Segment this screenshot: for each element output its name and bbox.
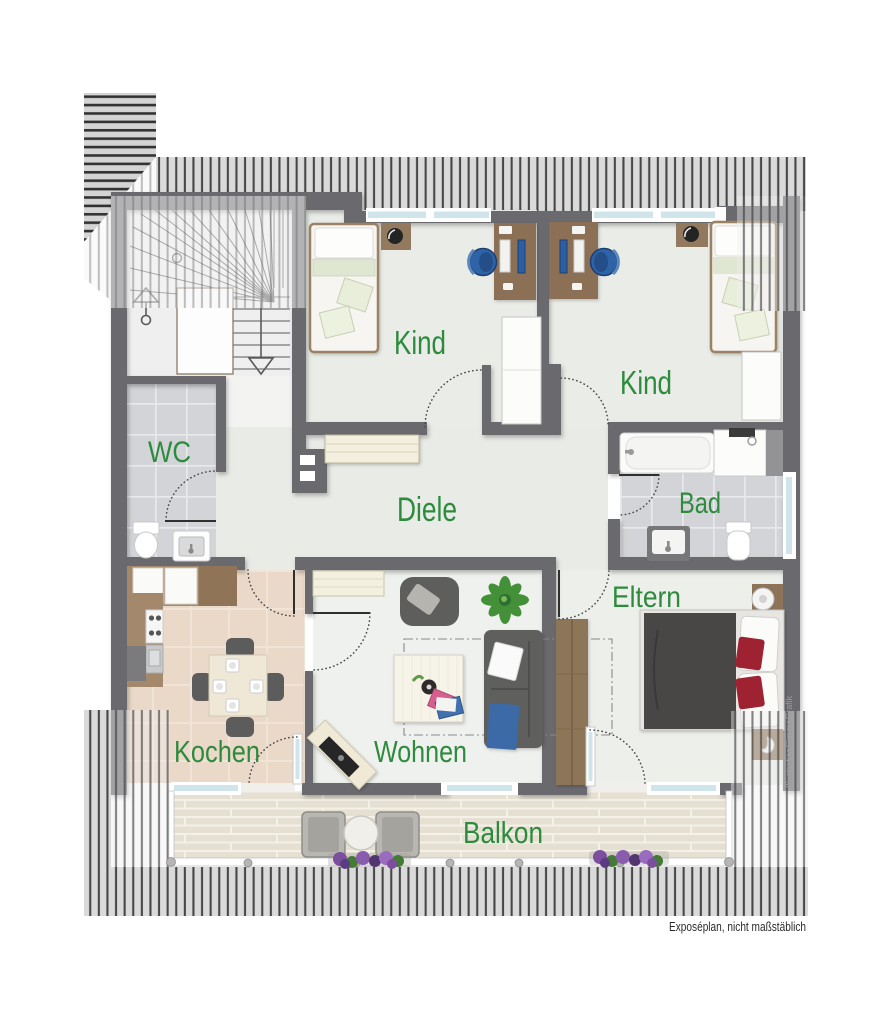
svg-text:Wohnen: Wohnen	[374, 734, 467, 769]
svg-text:Balkon: Balkon	[463, 815, 543, 850]
svg-text:Kind: Kind	[620, 364, 672, 401]
svg-text:WC: WC	[148, 436, 191, 469]
svg-text:Eltern: Eltern	[612, 581, 681, 614]
svg-text:Diele: Diele	[397, 491, 457, 529]
svg-text:IllustrationCimmoGrafik: IllustrationCimmoGrafik	[784, 696, 794, 788]
svg-text:Kochen: Kochen	[174, 734, 260, 769]
svg-text:Bad: Bad	[679, 487, 721, 520]
svg-text:Kind: Kind	[394, 324, 446, 361]
svg-text:Exposéplan, nicht maßstäblich: Exposéplan, nicht maßstäblich	[669, 919, 806, 934]
